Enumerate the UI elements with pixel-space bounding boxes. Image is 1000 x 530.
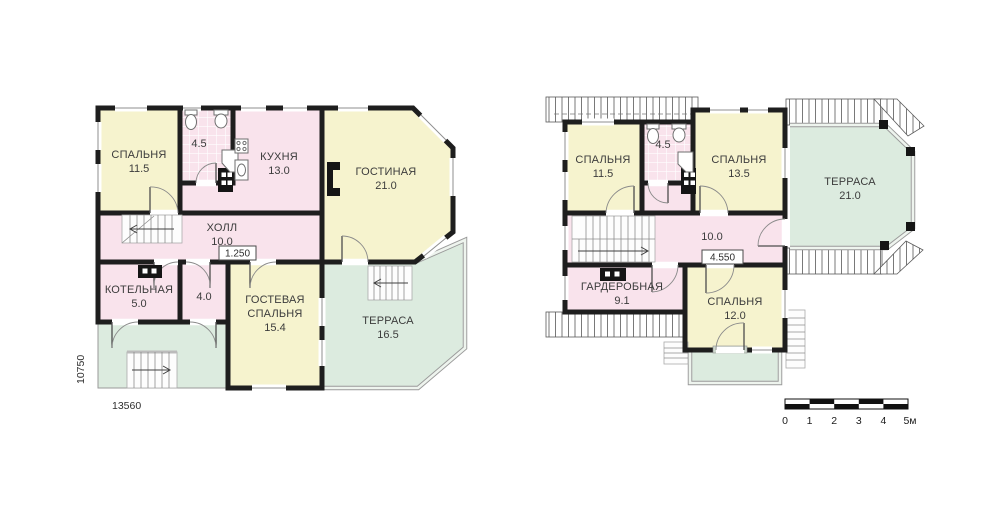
floor1-bedroom-label: СПАЛЬНЯ (111, 149, 166, 161)
floor2-wardrobe-label: ГАРДЕРОБНАЯ (581, 281, 663, 293)
scale-tick-3: 3 (856, 415, 862, 427)
floor1-entry-stairs (127, 352, 177, 388)
floor1-toilet-icon (185, 110, 197, 130)
floor1-kitchen-area: 13.0 (268, 165, 289, 177)
floor1-bedroom-area: 11.5 (129, 163, 150, 175)
floor1-living-area: 21.0 (375, 180, 396, 192)
floor2-bathroom-area: 4.5 (655, 139, 670, 151)
floor2-elevation-mark: 4.550 (702, 250, 743, 264)
scale-bar: 0 1 2 3 4 5м (782, 399, 916, 427)
scale-tick-2: 2 (831, 415, 837, 427)
svg-text:1.250: 1.250 (225, 249, 250, 260)
floor1-sink-icon (214, 110, 228, 128)
floor1-boiler-label: КОТЕЛЬНАЯ (105, 284, 173, 296)
floor1-boiler-area: 5.0 (131, 298, 146, 310)
floor1-terrace-label: ТЕРРАСА (362, 315, 414, 327)
floor1-dim-vertical: 10750 (75, 355, 87, 384)
floor1-hall-label: ХОЛЛ (207, 222, 238, 234)
floor1-hall-stairs (122, 215, 182, 243)
scale-tick-4: 4 (880, 415, 886, 427)
svg-text:4.550: 4.550 (710, 253, 735, 264)
floor1-guest-label-1: ГОСТЕВАЯ (245, 294, 304, 306)
floor1-stove-icon (235, 139, 248, 153)
scale-tick-5: 5м (903, 415, 916, 427)
floor2-bedroom-right-label: СПАЛЬНЯ (711, 154, 766, 166)
floor2-sink-icon (672, 124, 686, 142)
floor2-balcony (690, 350, 782, 385)
floor-plans-svg: СПАЛЬНЯ 11.5 4.5 КУХНЯ 13.0 ГОСТИНАЯ 21.… (0, 0, 1000, 530)
floor2-bedroom-left-label: СПАЛЬНЯ (575, 154, 630, 166)
floor1-dim-horizontal: 13560 (112, 400, 141, 412)
floor2-wardrobe-area: 9.1 (614, 295, 629, 307)
floor1-living-label: ГОСТИНАЯ (356, 166, 417, 178)
floor1-boiler-icon (138, 265, 162, 278)
floor1-kitchen-label: КУХНЯ (260, 151, 298, 163)
floor1-guest-area: 15.4 (264, 322, 285, 334)
floor1-terrace-area: 16.5 (377, 329, 398, 341)
floor1-kitchen-sink-icon (235, 160, 248, 180)
floor1-elevation-mark: 1.250 (219, 246, 256, 260)
floor1-plan: СПАЛЬНЯ 11.5 4.5 КУХНЯ 13.0 ГОСТИНАЯ 21.… (75, 108, 465, 412)
floor-plan-canvas: СПАЛЬНЯ 11.5 4.5 КУХНЯ 13.0 ГОСТИНАЯ 21.… (0, 0, 1000, 530)
floor2-terrace-area: 21.0 (839, 190, 860, 202)
scale-tick-1: 1 (807, 415, 813, 427)
floor1-guest-label-2: СПАЛЬНЯ (247, 308, 302, 320)
floor1-storage-area: 4.0 (196, 291, 211, 303)
floor2-bedroom-right-area: 13.5 (728, 168, 749, 180)
scale-tick-0: 0 (782, 415, 788, 427)
floor2-plan: СПАЛЬНЯ 11.5 4.5 СПАЛЬНЯ 13.5 ТЕРРАСА 21… (546, 97, 924, 385)
floor2-wardrobe-icon (600, 268, 626, 281)
floor1-terrace-stairs (368, 266, 412, 300)
floor2-bedroom-bottom-area: 12.0 (724, 310, 745, 322)
floor2-terrace-label: ТЕРРАСА (824, 176, 876, 188)
floor2-hall-area: 10.0 (701, 231, 722, 243)
floor2-hall-stairs (572, 216, 655, 262)
floor1-bathroom-area: 4.5 (191, 138, 206, 150)
floor2-bedroom-bottom-label: СПАЛЬНЯ (707, 296, 762, 308)
floor2-bedroom-left-area: 11.5 (593, 168, 614, 180)
